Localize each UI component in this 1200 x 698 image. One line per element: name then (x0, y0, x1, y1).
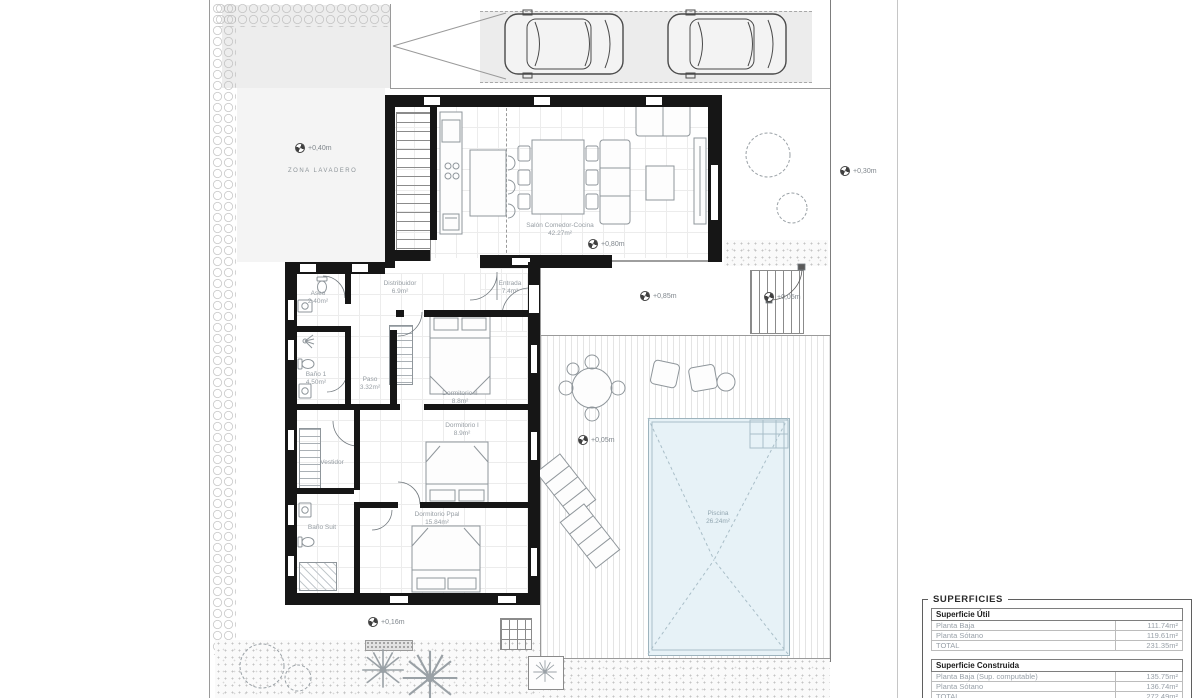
level-marker-patio: +0,40m (295, 143, 332, 153)
bed-dorm1 (426, 442, 488, 504)
table-row: Planta Baja (Sup. computable)135.75m² (931, 672, 1183, 682)
room-label-entrada: Entrada7.4m² (499, 280, 522, 295)
kitchen-counter (440, 112, 462, 234)
room-label-vestidor: Vestidor (320, 459, 344, 467)
window (498, 596, 516, 603)
window (300, 264, 316, 272)
room-label-paso: Paso3.32m² (360, 376, 380, 391)
room-label-aseo: Aseo2.40m² (308, 290, 328, 305)
benchmark-icon (639, 290, 652, 303)
wall-segment (430, 106, 437, 240)
shower-head-icon (303, 335, 314, 348)
wall-segment (297, 488, 354, 494)
benchmark-icon (587, 238, 600, 251)
superficies-title: SUPERFICIES (928, 594, 1008, 605)
level-marker-deck: +0,05m (578, 435, 615, 445)
benchmark-icon (577, 434, 590, 447)
room-label-dormppal: Dormitorio Ppal15.84m² (415, 511, 460, 526)
room-label-piscina: Piscina26.24m² (706, 510, 730, 525)
window (288, 505, 294, 525)
sink-icon (299, 503, 311, 517)
wall-segment (424, 310, 528, 317)
room-label-banosuit: Baño Suit (308, 524, 336, 532)
toilet-icon (298, 359, 314, 369)
door-opening (529, 285, 539, 313)
driveway-perspective-lines (393, 13, 506, 79)
wall-segment (390, 330, 397, 406)
wall-segment (354, 410, 360, 490)
dining-table-set (518, 140, 598, 214)
room-label-dorm2: Dormitorio II8.8m² (442, 390, 477, 405)
pool-detail (648, 418, 788, 654)
wall-segment (297, 326, 347, 332)
room-label-salon: Salón Comedor-Cocina42.27m² (526, 222, 594, 237)
car-icon (505, 10, 623, 78)
window (534, 97, 550, 105)
table-row: Planta Baja111.74m² (931, 621, 1183, 631)
window (646, 97, 662, 105)
wall-segment (385, 250, 430, 261)
table-row: Planta Sótano136.74m² (931, 682, 1183, 692)
level-marker-jardin: +0,16m (368, 617, 405, 627)
level-marker-gate: +0,05m (764, 292, 801, 302)
table-section-header: Superficie Construida (931, 659, 1183, 672)
window (390, 596, 408, 603)
bed-ppal (412, 526, 480, 592)
table-row: Planta Sótano119.61m² (931, 631, 1183, 641)
sink-icon (299, 384, 311, 398)
benchmark-icon (763, 291, 776, 304)
car-icon (668, 10, 786, 78)
toilet-icon (298, 537, 314, 547)
wall-segment (354, 508, 360, 593)
sun-loungers (536, 454, 619, 568)
room-label-bano1: Baño 14.50m² (306, 371, 327, 386)
table-row: TOTAL272.49m² (931, 692, 1183, 698)
superficie-construida-table: Superficie Construida Planta Baja (Sup. … (931, 659, 1183, 698)
benchmark-icon (367, 616, 380, 629)
window (531, 345, 537, 373)
superficie-util-table: Superficie Útil Planta Baja111.74m² Plan… (931, 608, 1183, 651)
room-label-distribuidor: Distribuidor6.9m² (384, 280, 417, 295)
window (288, 300, 294, 320)
zona-lavadero-label: ZONA LAVADERO (288, 168, 357, 174)
benchmark-icon (294, 142, 307, 155)
wall-segment (345, 326, 351, 406)
window (352, 264, 368, 272)
floor-plan-canvas: ZONA LAVADERO Salón Comedor-Cocina42.27m… (0, 0, 1200, 698)
window (288, 556, 294, 576)
wall-segment (354, 502, 398, 508)
bed-dorm2 (430, 314, 490, 394)
window (424, 97, 440, 105)
wall-segment (396, 310, 404, 317)
sofa-set (600, 104, 706, 224)
table-section-header: Superficie Útil (931, 608, 1183, 621)
level-marker-terraza: +0,85m (640, 291, 677, 301)
wall-segment (420, 502, 528, 508)
level-marker-salon: +0,80m (588, 239, 625, 249)
kitchen-island (470, 150, 515, 218)
level-marker-lateral: +0,30m (840, 166, 877, 176)
room-label-dorm1: Dormitorio I8.9m² (445, 422, 479, 437)
outdoor-armchairs (650, 360, 735, 393)
window (288, 340, 294, 360)
window (711, 165, 718, 220)
benchmark-icon (839, 165, 852, 178)
wall-segment (345, 274, 351, 304)
window (531, 548, 537, 576)
window (288, 430, 294, 450)
wall-segment (480, 255, 612, 268)
window (531, 432, 537, 460)
outdoor-dining-set (559, 355, 625, 421)
table-row: TOTAL231.35m² (931, 641, 1183, 651)
wall-segment (385, 95, 395, 268)
superficies-panel: SUPERFICIES Superficie Útil Planta Baja1… (922, 599, 1192, 698)
